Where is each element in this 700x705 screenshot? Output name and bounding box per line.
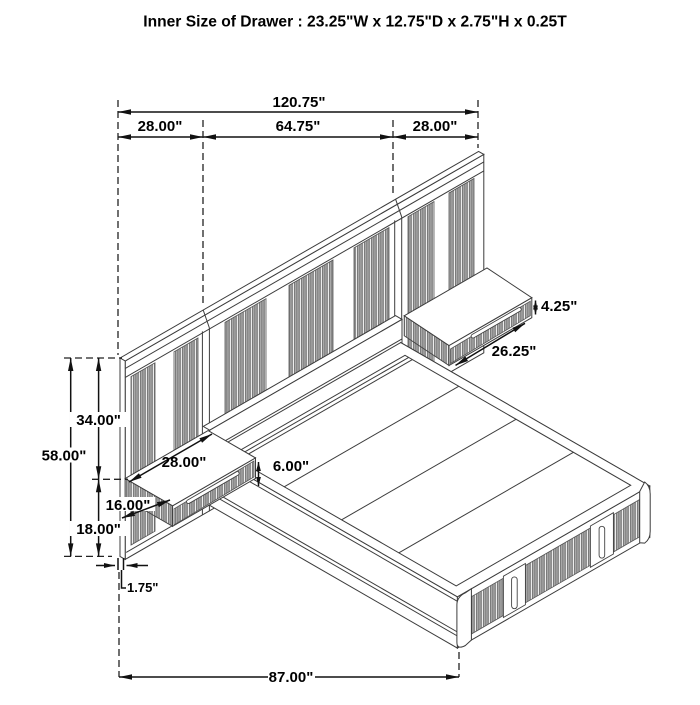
svg-text:4.25": 4.25"	[541, 298, 577, 315]
svg-text:28.00": 28.00"	[138, 118, 183, 135]
svg-text:28.00": 28.00"	[162, 454, 207, 471]
svg-text:28.00": 28.00"	[413, 118, 458, 135]
svg-text:Inner Size of Drawer : 23.25"W: Inner Size of Drawer : 23.25"W x 12.75"D…	[143, 14, 567, 31]
svg-text:16.00": 16.00"	[106, 497, 151, 514]
svg-text:120.75": 120.75"	[273, 94, 326, 111]
svg-text:1.75": 1.75"	[127, 580, 158, 595]
svg-text:18.00": 18.00"	[76, 521, 121, 538]
svg-text:6.00": 6.00"	[273, 458, 309, 475]
svg-text:64.75": 64.75"	[276, 118, 321, 135]
svg-text:34.00": 34.00"	[76, 412, 121, 429]
svg-text:87.00": 87.00"	[269, 669, 314, 686]
svg-text:58.00": 58.00"	[42, 448, 87, 465]
svg-text:26.25": 26.25"	[492, 343, 537, 360]
